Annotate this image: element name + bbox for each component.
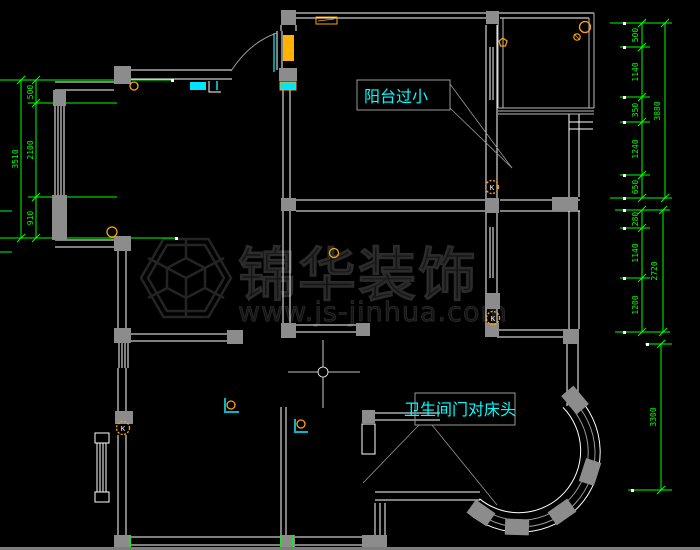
svg-text:2100: 2100 <box>26 140 35 159</box>
watermark-logo-icon <box>141 238 231 317</box>
cad-viewport[interactable]: 锦华装饰 www.js-jinhua.com <box>0 0 700 550</box>
entry-threshold <box>280 82 296 90</box>
svg-text:3880: 3880 <box>653 101 662 120</box>
svg-text:350: 350 <box>631 103 640 118</box>
dimension-chain-left: 500 2100 910 3510 <box>11 76 178 242</box>
svg-text:1140: 1140 <box>631 243 640 262</box>
balcony-note: 阳台过小 <box>357 80 512 168</box>
balcony-note-text: 阳台过小 <box>364 87 428 106</box>
watermark-url: www.js-jinhua.com <box>238 297 508 328</box>
cad-canvas[interactable]: 锦华装饰 www.js-jinhua.com <box>0 0 700 550</box>
left-bay-window <box>95 433 109 502</box>
svg-text:500: 500 <box>26 85 35 100</box>
svg-text:3510: 3510 <box>11 149 20 168</box>
dimension-chain-right-middle: 280 1140 1200 2720 <box>615 206 670 336</box>
svg-text:650: 650 <box>631 180 640 195</box>
svg-text:1200: 1200 <box>631 295 640 314</box>
watermark: 锦华装饰 www.js-jinhua.com <box>141 238 508 328</box>
svg-text:500: 500 <box>631 28 640 43</box>
entry-door-leaf <box>283 35 294 61</box>
svg-text:1240: 1240 <box>631 139 640 158</box>
svg-text:280: 280 <box>631 212 640 227</box>
svg-text:2720: 2720 <box>650 261 659 280</box>
svg-text:K: K <box>121 425 126 433</box>
svg-text:1140: 1140 <box>631 62 640 81</box>
entry-door-swing <box>231 33 277 71</box>
svg-text:K: K <box>490 184 495 192</box>
dimension-chain-right-bottom: 3300 <box>628 340 672 494</box>
dimension-chain-right-top: 500 1140 350 1240 650 3880 <box>610 19 672 202</box>
bathroom-note-text: 卫生间门对床头 <box>404 400 516 419</box>
bathroom-note: 卫生间门对床头 <box>363 393 516 483</box>
svg-text:3300: 3300 <box>649 407 658 426</box>
svg-text:910: 910 <box>26 211 35 226</box>
centerline-marker <box>288 340 360 408</box>
